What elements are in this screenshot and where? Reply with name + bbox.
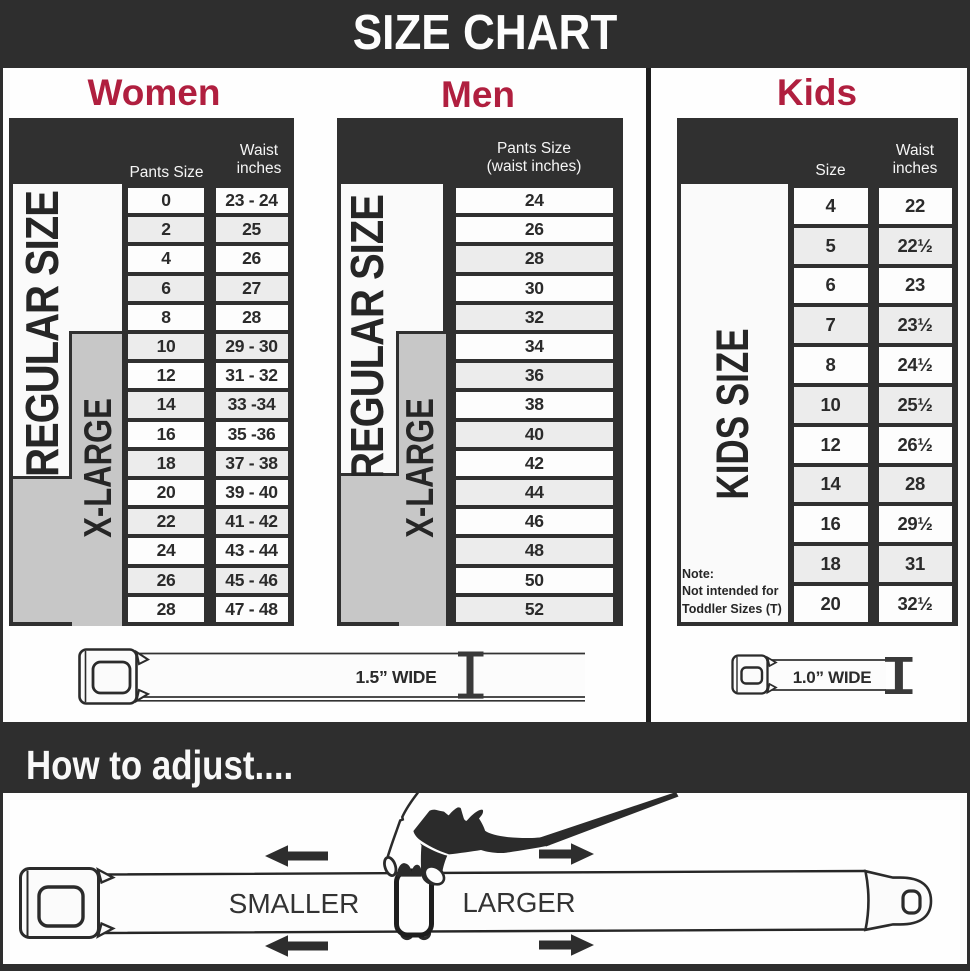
svg-text:LARGER: LARGER bbox=[462, 887, 575, 918]
svg-text:SMALLER: SMALLER bbox=[229, 888, 360, 919]
